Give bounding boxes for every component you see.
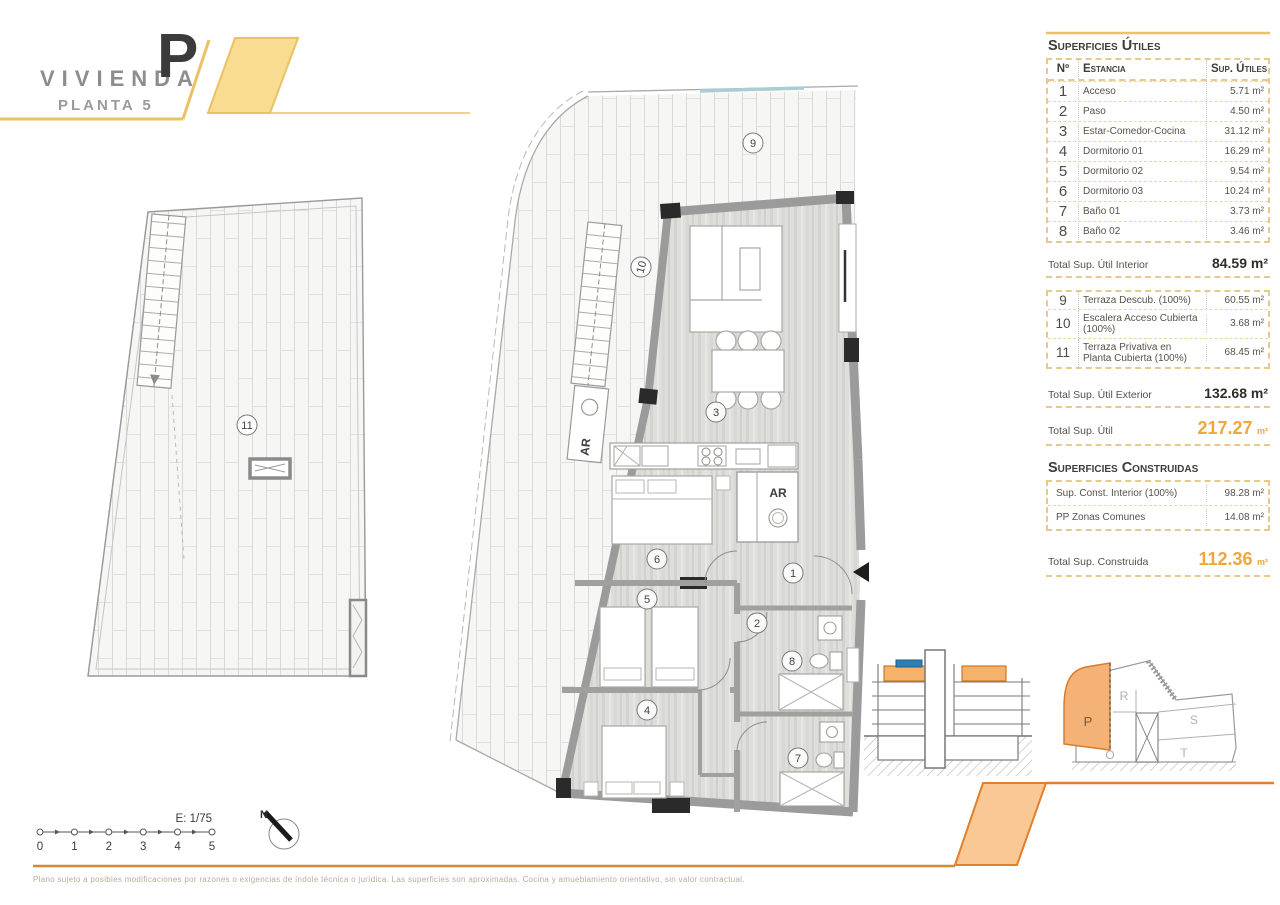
row-num: 3 — [1048, 122, 1078, 141]
row-room: Sup. Const. Interior (100%) — [1048, 482, 1206, 505]
total-util-value: 217.27 — [1197, 418, 1252, 438]
table-row: 6 Dormitorio 03 10.24 m² — [1048, 181, 1268, 201]
areas-panel: Superficies Útiles Nº Estancia Sup. Útil… — [1046, 38, 1270, 577]
scale-bar: E: 1/75 0 1 2 3 4 5 — [37, 813, 215, 853]
total-construida-unit: m² — [1257, 557, 1268, 567]
bedroom-03-furniture — [612, 476, 730, 544]
room-label-11: 11 — [241, 420, 252, 432]
row-room: Acceso — [1078, 83, 1206, 100]
total-exterior-value: 132.68 m² — [1204, 385, 1268, 401]
dining-set — [712, 331, 784, 409]
construidas-table: Sup. Const. Interior (100%) 98.28 m² PP … — [1046, 480, 1270, 531]
row-room: Dormitorio 02 — [1078, 163, 1206, 180]
scale-tick-2: 2 — [106, 841, 112, 853]
scale-tick-4: 4 — [174, 841, 181, 853]
table-row: 10 Escalera Acceso Cubierta (100%) 3.68 … — [1048, 309, 1268, 338]
row-area: 5.71 m² — [1206, 83, 1268, 100]
site-key-unit-p-shape — [1064, 663, 1110, 750]
row-num: 7 — [1048, 202, 1078, 221]
row-num: 2 — [1048, 102, 1078, 121]
row-area: 9.54 m² — [1206, 163, 1268, 180]
total-construida-value: 112.36 — [1198, 549, 1252, 569]
total-util-label: Total Sup. Útil — [1048, 425, 1113, 437]
table-row: 3 Estar-Comedor-Cocina 31.12 m² — [1048, 121, 1268, 141]
kitchen-counter — [610, 443, 798, 469]
total-construida: Total Sup. Construida 112.36 m² — [1046, 545, 1270, 577]
row-area: 98.28 m² — [1206, 485, 1268, 502]
table-row: 9 Terraza Descub. (100%) 60.55 m² — [1048, 292, 1268, 309]
utiles-table: Nº Estancia Sup. Útiles 1 Acceso 5.71 m²… — [1046, 58, 1270, 243]
plan-sheet: 11 9 AR — [0, 0, 1280, 905]
site-key-label-r: R — [1120, 689, 1129, 703]
row-num: 8 — [1048, 222, 1078, 241]
total-util-unit: m² — [1257, 426, 1268, 436]
building-section-diagram — [864, 650, 1032, 776]
row-room: Baño 01 — [1078, 203, 1206, 220]
site-key-label-t: T — [1180, 746, 1188, 760]
ar-shaft-label: AR — [578, 437, 594, 456]
total-construida-label: Total Sup. Construida — [1048, 556, 1148, 568]
row-area: 60.55 m² — [1206, 292, 1268, 309]
total-interior-label: Total Sup. Útil Interior — [1048, 259, 1148, 271]
table-row: PP Zonas Comunes 14.08 m² — [1048, 505, 1268, 529]
floor-subtitle: PLANTA 5 — [58, 97, 154, 114]
total-interior: Total Sup. Útil Interior 84.59 m² — [1046, 251, 1270, 278]
row-room: Terraza Privativa en Planta Cubierta (10… — [1078, 339, 1206, 367]
row-area: 16.29 m² — [1206, 143, 1268, 160]
utiles-title: Superficies Útiles — [1048, 38, 1270, 54]
room-label-5: 5 — [644, 594, 650, 606]
total-exterior: Total Sup. Útil Exterior 132.68 m² — [1046, 381, 1270, 408]
row-area: 3.68 m² — [1206, 315, 1268, 332]
table-row: 11 Terraza Privativa en Planta Cubierta … — [1048, 338, 1268, 367]
row-num: 11 — [1048, 344, 1078, 361]
site-key-label-s: S — [1190, 713, 1198, 727]
room-label-9: 9 — [750, 138, 756, 150]
room-label-7: 7 — [795, 753, 801, 765]
disclaimer-text: Plano sujeto a posibles modificaciones p… — [33, 875, 753, 884]
table-row: 7 Baño 01 3.73 m² — [1048, 201, 1268, 221]
row-num: 1 — [1048, 82, 1078, 101]
row-room: Terraza Descub. (100%) — [1078, 292, 1206, 309]
table-row: Sup. Const. Interior (100%) 98.28 m² — [1048, 482, 1268, 505]
scale-tick-1: 1 — [71, 841, 77, 853]
row-room: Dormitorio 01 — [1078, 143, 1206, 160]
row-room: PP Zonas Comunes — [1048, 506, 1206, 529]
unit-letter: P — [157, 26, 198, 88]
total-util: Total Sup. Útil 217.27 m² — [1046, 414, 1270, 446]
row-room: Escalera Acceso Cubierta (100%) — [1078, 310, 1206, 338]
total-exterior-label: Total Sup. Útil Exterior — [1048, 389, 1152, 401]
row-room: Baño 02 — [1078, 223, 1206, 240]
ar-closet-label: AR — [769, 486, 787, 500]
roof-terrace-plan: 11 — [88, 198, 366, 676]
col-num: Nº — [1048, 60, 1078, 78]
row-num: 6 — [1048, 182, 1078, 201]
col-room: Estancia — [1078, 60, 1206, 79]
scale-tick-5: 5 — [209, 841, 215, 853]
row-area: 3.46 m² — [1206, 223, 1268, 240]
sofa — [690, 226, 782, 332]
room-label-2: 2 — [754, 618, 760, 630]
room-label-6: 6 — [654, 554, 660, 566]
exterior-table: 9 Terraza Descub. (100%) 60.55 m² 10 Esc… — [1046, 290, 1270, 369]
main-floor-plan: 9 AR 10 — [450, 86, 869, 813]
room-label-3: 3 — [713, 407, 719, 419]
row-room: Dormitorio 03 — [1078, 183, 1206, 200]
row-area: 31.12 m² — [1206, 123, 1268, 140]
table-row: 5 Dormitorio 02 9.54 m² — [1048, 161, 1268, 181]
row-area: 14.08 m² — [1206, 509, 1268, 526]
scale-label: E: 1/75 — [176, 813, 212, 825]
glass-balustrade — [700, 88, 804, 91]
room-label-1: 1 — [790, 568, 796, 580]
table-row: 4 Dormitorio 01 16.29 m² — [1048, 141, 1268, 161]
site-key-label-p: P — [1084, 714, 1093, 729]
utiles-table-header: Nº Estancia Sup. Útiles — [1048, 60, 1268, 81]
row-num: 5 — [1048, 162, 1078, 181]
scale-tick-0: 0 — [37, 841, 43, 853]
table-row: 1 Acceso 5.71 m² — [1048, 81, 1268, 101]
row-area: 4.50 m² — [1206, 103, 1268, 120]
row-area: 3.73 m² — [1206, 203, 1268, 220]
north-label: N — [260, 809, 268, 821]
row-area: 68.45 m² — [1206, 344, 1268, 361]
site-key-label-o: O — [1105, 748, 1114, 762]
laundry-closet: AR — [737, 472, 798, 542]
room-label-8: 8 — [789, 656, 795, 668]
row-num: 9 — [1048, 292, 1078, 309]
site-key-diagram: P R S T O — [1064, 661, 1236, 771]
row-room: Paso — [1078, 103, 1206, 120]
row-area: 10.24 m² — [1206, 183, 1268, 200]
table-row: 2 Paso 4.50 m² — [1048, 101, 1268, 121]
row-num: 4 — [1048, 142, 1078, 161]
row-num: 10 — [1048, 315, 1078, 332]
section-pool-marker — [896, 660, 922, 667]
construidas-title: Superficies Construidas — [1048, 460, 1270, 476]
scale-tick-3: 3 — [140, 841, 146, 853]
row-room: Estar-Comedor-Cocina — [1078, 123, 1206, 140]
room-label-4: 4 — [644, 705, 650, 717]
total-interior-value: 84.59 m² — [1212, 255, 1268, 271]
north-arrow-icon: N — [260, 809, 299, 849]
table-row: 8 Baño 02 3.46 m² — [1048, 221, 1268, 241]
col-area: Sup. Útiles — [1206, 60, 1268, 78]
